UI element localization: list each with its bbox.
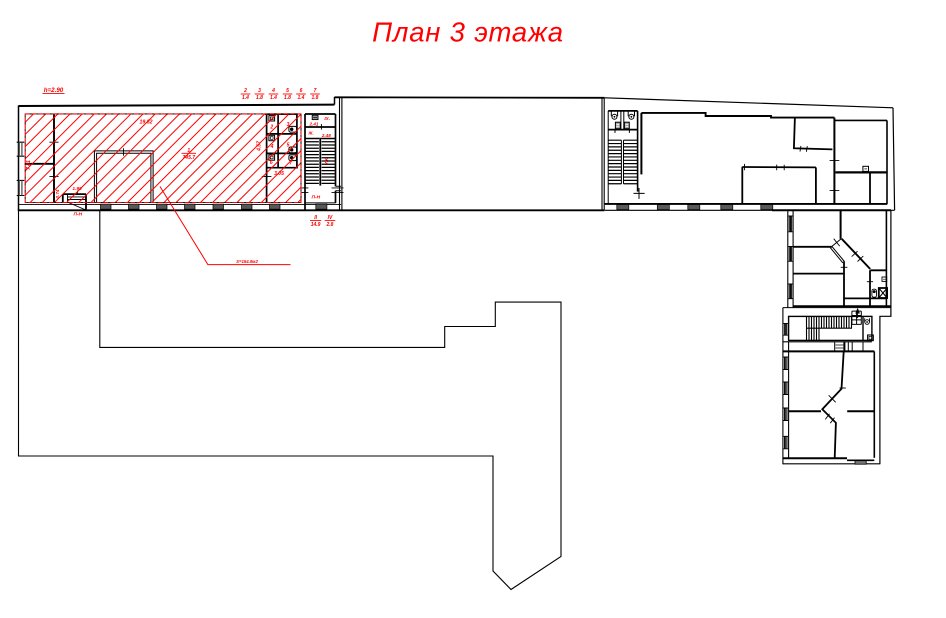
svg-text:1.4: 1.4	[242, 95, 249, 101]
svg-text:S=154.9м2: S=154.9м2	[236, 259, 258, 264]
svg-text:4: 4	[271, 88, 275, 94]
svg-text:4.57: 4.57	[256, 141, 262, 152]
svg-text:14.9: 14.9	[311, 222, 321, 228]
svg-text:1.99: 1.99	[72, 186, 82, 192]
svg-text:1.4: 1.4	[298, 95, 305, 101]
svg-text:745.7: 745.7	[183, 155, 196, 161]
svg-text:Ж.: Ж.	[307, 131, 314, 136]
svg-text:4: 4	[270, 144, 274, 150]
svg-text:2: 2	[269, 125, 273, 131]
svg-text:2.48: 2.48	[321, 133, 331, 138]
svg-text:1.4: 1.4	[270, 95, 277, 101]
svg-text:План 3 этажа: План 3 этажа	[372, 17, 564, 48]
svg-text:3: 3	[258, 88, 261, 94]
svg-text:3: 3	[287, 122, 290, 128]
svg-text:1.8: 1.8	[256, 95, 263, 101]
svg-text:IX.: IX.	[324, 116, 330, 121]
svg-text:h=2.90: h=2.90	[44, 87, 64, 94]
svg-text:5: 5	[287, 142, 290, 148]
svg-text:ЛК: ЛК	[324, 157, 329, 165]
svg-text:5: 5	[286, 88, 289, 94]
svg-text:2.8: 2.8	[326, 222, 334, 228]
svg-text:6: 6	[300, 88, 303, 94]
svg-text:П-Н: П-Н	[312, 195, 321, 201]
svg-text:1.8: 1.8	[284, 95, 291, 101]
svg-text:6: 6	[270, 160, 273, 166]
svg-text:3.05: 3.05	[274, 171, 284, 177]
svg-text:2.41: 2.41	[309, 121, 319, 126]
svg-text:7.81: 7.81	[26, 160, 32, 170]
svg-text:7: 7	[314, 88, 317, 94]
svg-text:1: 1	[187, 148, 190, 154]
svg-text:IV: IV	[328, 215, 333, 221]
svg-text:19.82: 19.82	[140, 119, 153, 125]
svg-text:1.8: 1.8	[312, 95, 319, 101]
svg-text:П-Н: П-Н	[74, 211, 83, 217]
svg-text:0.74: 0.74	[55, 189, 60, 198]
svg-text:2: 2	[243, 88, 247, 94]
svg-text:7: 7	[289, 161, 292, 167]
